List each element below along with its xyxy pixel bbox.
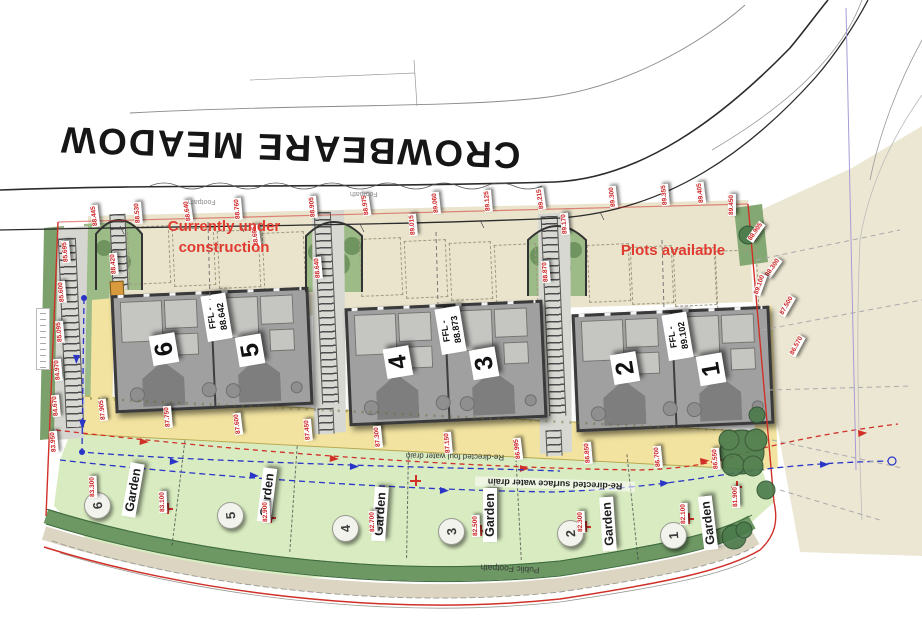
- spot-level: 82.900: [262, 501, 271, 523]
- spot-level: 81.900: [732, 486, 741, 508]
- spot-level: 82.100: [680, 503, 689, 525]
- spot-level: 87.600: [233, 413, 244, 436]
- spot-level: 88.640: [313, 257, 323, 280]
- spot-level: 85.600: [57, 281, 67, 304]
- spot-level: 86.570: [788, 334, 805, 357]
- spot-level: 87.500: [778, 295, 796, 318]
- spot-level: 88.530: [133, 202, 143, 225]
- spot-level: 84.670: [51, 395, 61, 418]
- spot-level: 87.300: [373, 426, 383, 449]
- spot-level: 84.970: [53, 359, 63, 382]
- spot-level: 89.215: [535, 188, 546, 211]
- spot-level: 88.975: [360, 194, 371, 217]
- spot-level: 88.870: [541, 261, 551, 284]
- footpath-note: Footpath: [350, 190, 378, 197]
- spot-level: 86.700: [653, 446, 663, 469]
- spot-level: 89.125: [483, 190, 493, 213]
- spot-level: 83.950: [49, 431, 59, 454]
- spot-level: 88.905: [308, 196, 318, 219]
- site-plan: 6 5 FFL - 88.642 4 3 FFL -: [0, 0, 922, 624]
- spot-level: 83.100: [159, 491, 168, 513]
- spot-level: 89.450: [728, 194, 736, 216]
- spot-level: 89.355: [660, 184, 670, 207]
- spot-level: 89.170: [560, 213, 570, 236]
- spot-level: 82.500: [472, 515, 481, 537]
- spot-level: 82.300: [577, 511, 586, 533]
- spot-level: 89.015: [408, 214, 418, 237]
- spot-level: 82.700: [369, 511, 378, 533]
- spot-level: 87.450: [303, 419, 313, 442]
- spot-level: 89.060: [431, 192, 441, 215]
- spot-level: 85.695: [61, 241, 71, 264]
- spot-level: 87.750: [163, 406, 173, 429]
- footpath-note: Footpath: [188, 198, 216, 205]
- spot-level: 88.445: [90, 205, 101, 228]
- plots-available-note: Plots available: [608, 242, 738, 259]
- spot-levels: 88.44588.53088.64088.76088.69588.90588.9…: [0, 0, 922, 624]
- spot-level: 87.905: [98, 399, 108, 422]
- spot-level: 83.300: [89, 476, 98, 498]
- under-construction-note: Currently under construction: [158, 216, 290, 258]
- spot-level: 85.095: [55, 321, 65, 344]
- spot-level: 89.100: [752, 273, 767, 296]
- spot-level: 86.850: [583, 442, 593, 465]
- spot-level: 88.905: [746, 221, 765, 244]
- spot-level: 86.550: [711, 448, 721, 471]
- spot-level: 89.405: [696, 182, 707, 205]
- spot-level: 88.420: [109, 253, 119, 276]
- spot-level: 89.300: [608, 186, 618, 209]
